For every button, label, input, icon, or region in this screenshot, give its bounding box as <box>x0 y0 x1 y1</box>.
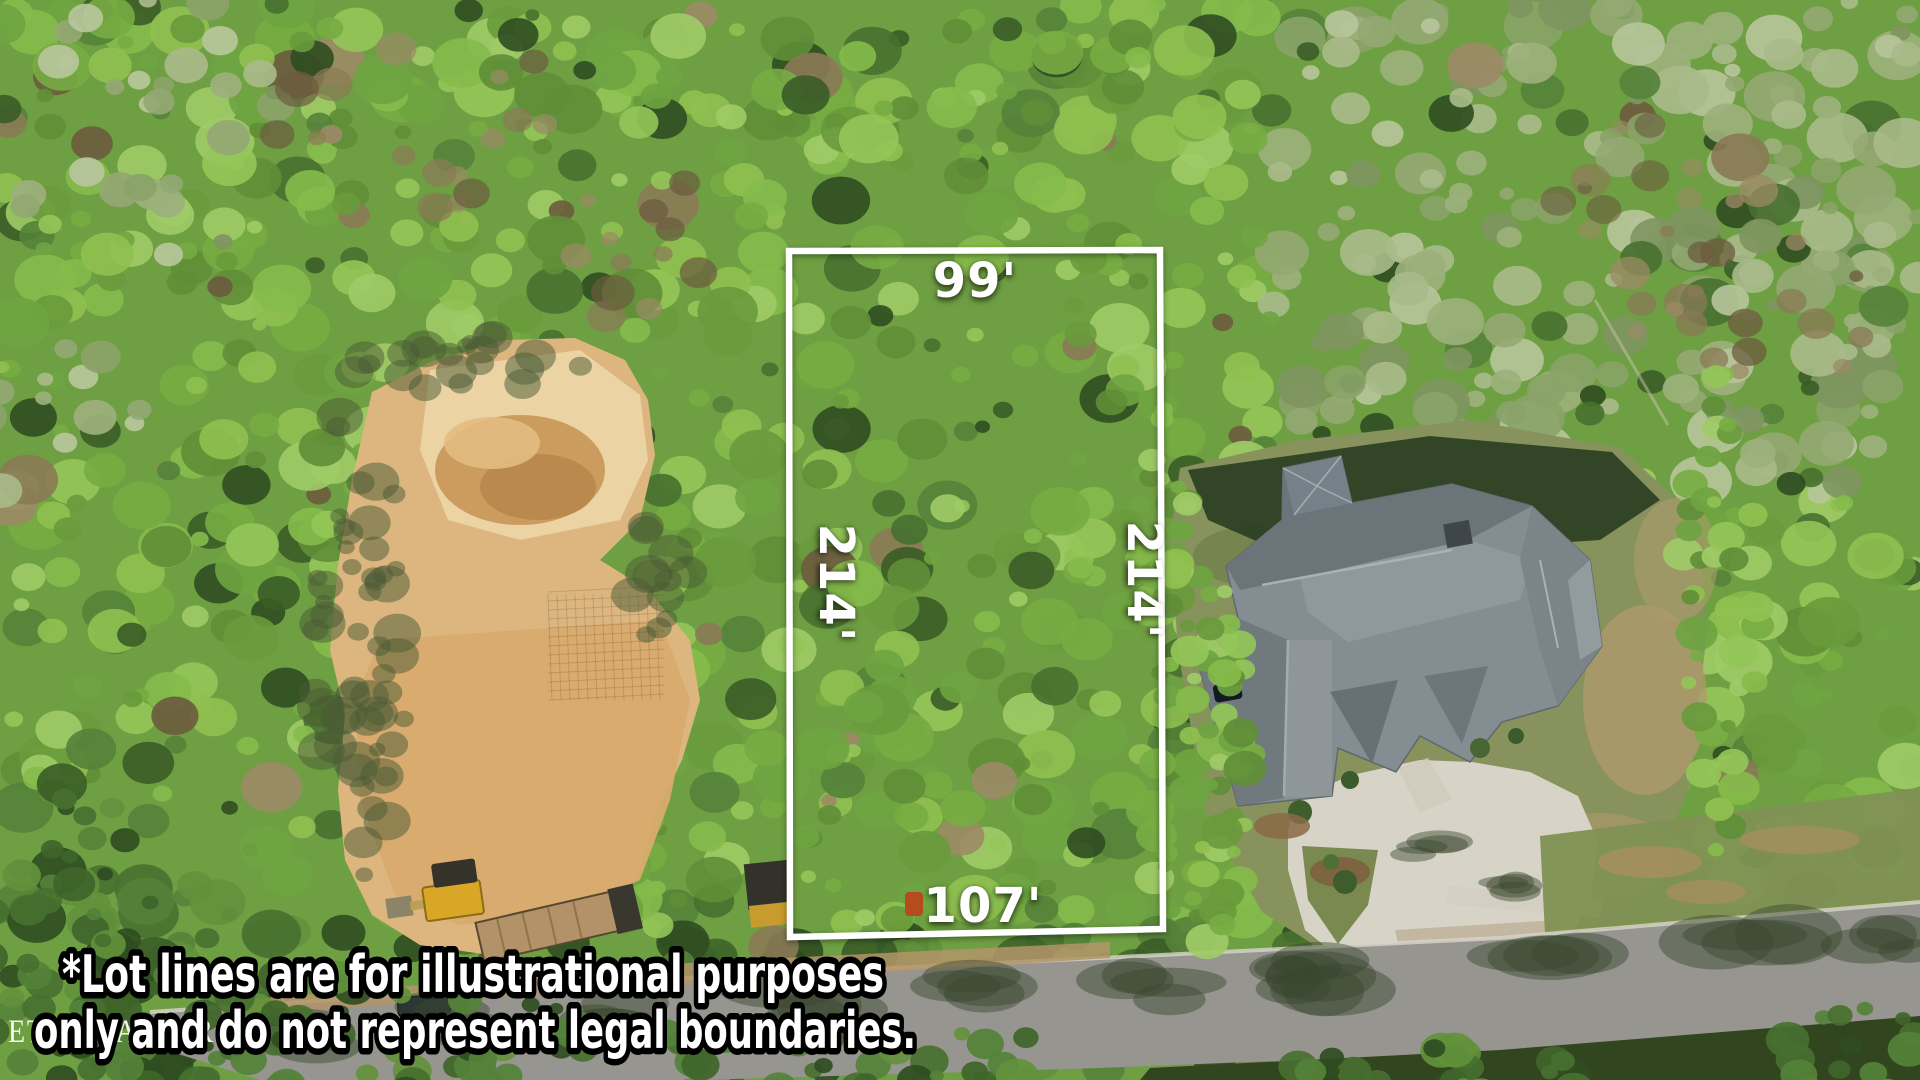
foliage-blob <box>996 82 1017 100</box>
foliage-blob <box>1702 365 1730 388</box>
foliage-blob <box>713 139 746 166</box>
foliage-blob <box>190 879 246 925</box>
foliage-blob <box>258 576 300 611</box>
foliage-blob <box>1218 252 1234 265</box>
foliage-blob <box>1575 402 1604 426</box>
foliage-blob <box>1089 691 1121 717</box>
foliage-blob <box>1650 66 1709 115</box>
foliage-blob <box>38 619 68 644</box>
foliage-blob <box>1556 109 1589 136</box>
foliage-blob <box>1540 186 1576 215</box>
foliage-blob <box>972 762 1018 799</box>
foliage-blob <box>1188 861 1220 887</box>
foliage-blob <box>191 532 209 546</box>
foliage-blob <box>924 338 941 352</box>
bulldozer-blade <box>385 895 414 918</box>
foliage-blob <box>792 825 820 848</box>
foliage-blob <box>802 460 837 489</box>
cast-shadow <box>1256 973 1331 1004</box>
foliage-blob <box>471 253 513 287</box>
foliage-blob <box>974 611 1000 632</box>
foliage-blob <box>44 557 80 587</box>
foliage-blob <box>1331 92 1370 124</box>
foliage-blob <box>52 789 77 810</box>
foliage-blob <box>1769 1030 1790 1047</box>
foliage-blob <box>735 479 780 516</box>
foliage-blob <box>1690 651 1704 663</box>
foliage-blob <box>729 23 745 36</box>
foliage-blob <box>1725 76 1745 92</box>
foliage-blob <box>1020 99 1052 126</box>
foliage-blob <box>1093 802 1110 816</box>
foliage-blob <box>153 786 173 802</box>
foliage-blob <box>1811 49 1858 88</box>
foliage-blob <box>1012 345 1039 367</box>
foliage-blob <box>1155 898 1181 919</box>
foliage-blob <box>1322 37 1360 68</box>
foliage-blob <box>1021 598 1078 645</box>
foliage-blob <box>1363 311 1402 343</box>
foliage-blob <box>954 422 978 442</box>
foliage-blob <box>668 892 688 908</box>
foliage-blob <box>81 341 121 374</box>
foliage-blob <box>1781 521 1836 566</box>
foliage-blob <box>1203 779 1218 791</box>
foliage-blob <box>1106 735 1123 749</box>
foliage-blob <box>3 860 41 891</box>
foliage-blob <box>36 242 52 255</box>
foliage-blob <box>1712 44 1737 64</box>
foliage-blob <box>243 60 277 87</box>
foliage-blob <box>695 623 723 646</box>
foliage-blob <box>1896 6 1918 24</box>
foliage-blob <box>1798 597 1860 648</box>
foliage-blob <box>53 867 95 902</box>
foliage-blob <box>1740 439 1776 468</box>
foliage-blob <box>1803 6 1833 31</box>
foliage-blob <box>202 26 238 55</box>
foliage-blob <box>1764 38 1804 70</box>
foliage-blob <box>851 225 905 269</box>
foliage-blob <box>1717 749 1749 775</box>
foliage-blob <box>1861 405 1878 419</box>
foliage-blob <box>721 616 765 652</box>
foliage-blob <box>365 565 410 602</box>
foliage-blob <box>992 142 1008 155</box>
shrub <box>1508 728 1524 744</box>
foliage-blob <box>481 128 506 148</box>
foliage-blob <box>88 48 131 84</box>
foliage-blob <box>53 433 78 453</box>
foliage-blob <box>154 243 183 267</box>
foliage-blob <box>1196 617 1225 640</box>
foliage-blob <box>1711 133 1769 181</box>
foliage-blob <box>38 215 61 234</box>
foliage-blob <box>1156 288 1205 328</box>
foliage-blob <box>373 681 402 705</box>
foliage-blob <box>1320 1048 1344 1068</box>
foliage-blob <box>1184 891 1202 906</box>
foliage-blob <box>1277 365 1329 408</box>
foliage-blob <box>1195 841 1210 854</box>
foliage-blob <box>1366 362 1407 396</box>
foliage-blob <box>35 114 66 140</box>
foliage-blob <box>1319 313 1365 350</box>
foliage-blob <box>629 516 663 544</box>
foliage-blob <box>680 257 718 288</box>
foliage-blob <box>1187 673 1201 685</box>
foliage-blob <box>1229 123 1268 155</box>
foliage-blob <box>944 158 989 195</box>
foliage-blob <box>782 75 830 114</box>
lot-dimension-right: 214' <box>1116 521 1172 640</box>
foliage-blob <box>167 270 197 295</box>
foliage-blob <box>553 41 577 60</box>
foliage-blob <box>303 619 329 640</box>
foliage-blob <box>801 870 816 882</box>
foliage-blob <box>334 520 364 544</box>
foliage-blob <box>359 537 389 562</box>
foliage-blob <box>967 1029 1004 1060</box>
foliage-blob <box>1346 160 1380 188</box>
foliage-blob <box>1635 113 1666 138</box>
foliage-blob <box>410 336 437 358</box>
foliage-blob <box>1586 195 1621 224</box>
foliage-blob <box>515 339 556 373</box>
cast-shadow <box>1489 882 1540 902</box>
foliage-blob <box>1676 188 1702 209</box>
foliage-blob <box>894 802 928 830</box>
foliage-blob <box>1340 229 1397 276</box>
foliage-blob <box>1732 338 1767 366</box>
foliage-blob <box>1484 313 1526 347</box>
foliage-blob <box>73 674 102 698</box>
foliage-blob <box>1828 1060 1850 1078</box>
foliage-blob <box>112 482 171 530</box>
foliage-blob <box>1016 730 1075 778</box>
foliage-blob <box>839 114 899 163</box>
foliage-blob <box>890 96 919 120</box>
foliage-blob <box>1619 66 1660 100</box>
foliage-blob <box>37 89 54 103</box>
foliage-blob <box>1031 487 1090 536</box>
foliage-blob <box>10 895 48 926</box>
foliage-blob <box>1474 373 1493 389</box>
foliage-blob <box>1222 630 1256 658</box>
foliage-blob <box>342 559 361 575</box>
foliage-blob <box>761 362 778 376</box>
foliage-blob <box>951 367 970 383</box>
foliage-blob <box>519 50 548 74</box>
foliage-blob <box>1862 370 1903 403</box>
foliage-blob <box>1721 720 1736 732</box>
foliage-blob <box>1792 683 1816 702</box>
foliage-blob <box>1168 775 1210 810</box>
foliage-blob <box>1285 408 1318 435</box>
foliage-blob <box>128 71 151 90</box>
foliage-blob <box>1067 214 1090 233</box>
shrub <box>1341 771 1359 789</box>
foliage-blob <box>1563 281 1595 307</box>
foliage-blob <box>1738 503 1767 527</box>
foliage-blob <box>216 252 238 270</box>
foliage-blob <box>110 828 139 852</box>
foliage-blob <box>68 4 103 33</box>
foliage-blob <box>1878 706 1917 738</box>
foliage-blob <box>151 697 198 736</box>
foliage-blob <box>697 287 758 337</box>
foliage-blob <box>1686 759 1722 788</box>
foliage-blob <box>240 826 294 870</box>
foliage-blob <box>1876 628 1890 640</box>
foliage-blob <box>289 32 314 53</box>
foliage-blob <box>1380 50 1424 86</box>
foliage-blob <box>1813 96 1841 119</box>
foliage-blob <box>1627 292 1657 316</box>
foliage-blob <box>73 806 96 825</box>
foliage-blob <box>344 827 383 859</box>
foliage-blob <box>1739 175 1778 207</box>
foliage-blob <box>1681 590 1699 605</box>
foliage-blob <box>1156 844 1178 862</box>
foliage-blob <box>422 159 456 187</box>
foliage-blob <box>1030 31 1084 75</box>
foliage-blob <box>744 730 789 767</box>
foliage-blob <box>498 18 539 52</box>
foliage-blob <box>305 257 325 273</box>
foliage-blob <box>897 419 947 460</box>
foliage-blob <box>1612 121 1629 135</box>
foliage-blob <box>1612 22 1665 65</box>
foliage-blob <box>1517 114 1541 134</box>
island-tree <box>1333 870 1357 894</box>
foliage-blob <box>689 821 726 852</box>
foliage-blob <box>223 615 279 661</box>
foliage-blob <box>1224 352 1260 382</box>
foliage-blob <box>651 367 668 381</box>
foliage-blob <box>78 827 107 851</box>
foliage-blob <box>394 711 414 727</box>
foliage-blob <box>78 1058 106 1080</box>
foliage-blob <box>1742 671 1768 692</box>
foliage-blob <box>1209 914 1235 935</box>
foliage-blob <box>1139 749 1176 779</box>
foliage-blob <box>872 490 905 517</box>
foliage-blob <box>1102 70 1145 105</box>
foliage-blob <box>247 221 262 234</box>
foliage-blob <box>1708 522 1745 553</box>
foliage-blob <box>4 712 23 727</box>
foliage-blob <box>1036 7 1067 33</box>
foliage-blob <box>1496 401 1526 425</box>
foliage-blob <box>35 391 52 405</box>
foliage-blob <box>831 306 872 339</box>
foliage-blob <box>654 246 673 262</box>
foliage-blob <box>1771 100 1806 129</box>
foliage-blob <box>1801 209 1854 252</box>
cast-shadow <box>1503 935 1599 976</box>
foliage-blob <box>1847 533 1903 579</box>
foliage-blob <box>725 678 776 720</box>
foliage-blob <box>812 177 870 225</box>
foliage-blob <box>1130 496 1151 513</box>
foliage-blob <box>1198 722 1219 739</box>
foliage-blob <box>1681 676 1696 689</box>
skid-steer <box>744 860 793 928</box>
foliage-blob <box>317 17 344 39</box>
foliage-blob <box>927 87 977 128</box>
foliage-blob <box>1708 843 1724 856</box>
foliage-blob <box>877 326 916 358</box>
foliage-blob <box>1014 163 1066 206</box>
foliage-blob <box>797 727 850 770</box>
foliage-blob <box>1096 389 1128 415</box>
foliage-blob <box>1324 365 1366 399</box>
foliage-blob <box>1445 194 1468 213</box>
foliage-blob <box>475 322 507 348</box>
garage-wing-east-face <box>1284 640 1332 798</box>
foliage-blob <box>993 402 1013 419</box>
lot-dimension-bottom: 107' <box>924 878 1043 934</box>
foliage-blob <box>1872 266 1892 282</box>
foliage-blob <box>669 170 700 195</box>
foliage-blob <box>1207 659 1241 687</box>
foliage-blob <box>966 648 1005 680</box>
foliage-blob <box>1447 42 1503 88</box>
foliage-blob <box>182 605 209 627</box>
foliage-blob <box>332 192 360 215</box>
foliage-blob <box>930 494 964 522</box>
foliage-blob <box>1318 223 1340 241</box>
foliage-blob <box>1695 446 1721 467</box>
foliage-blob <box>975 421 990 433</box>
foliage-blob <box>1227 265 1256 289</box>
foliage-blob <box>1596 361 1628 387</box>
foliage-blob <box>1054 105 1114 154</box>
foliage-blob <box>1660 225 1674 237</box>
foliage-blob <box>1799 421 1854 466</box>
foliage-blob <box>796 341 854 389</box>
foliage-blob <box>1338 206 1356 220</box>
foliage-blob <box>1058 895 1095 925</box>
foliage-blob <box>14 598 30 611</box>
foliage-blob <box>383 485 406 504</box>
foliage-blob <box>1728 309 1763 338</box>
foliage-blob <box>1681 158 1703 176</box>
foliage-blob <box>1834 495 1853 510</box>
foliage-blob <box>569 357 592 376</box>
foliage-blob <box>1801 380 1820 395</box>
foliage-blob <box>105 79 124 95</box>
foliage-blob <box>619 106 658 138</box>
foliage-blob <box>358 355 381 374</box>
foliage-blob <box>0 988 24 1008</box>
foliage-blob <box>1798 308 1835 339</box>
foliage-blob <box>611 173 627 186</box>
foliage-blob <box>1610 257 1650 290</box>
cast-shadow <box>1133 984 1206 1016</box>
foliage-blob <box>367 636 391 656</box>
foliage-blob <box>748 536 805 583</box>
foliage-blob <box>839 41 876 71</box>
foliage-blob <box>207 120 250 155</box>
foliage-blob <box>249 413 279 438</box>
foliage-blob <box>1357 16 1396 48</box>
foliage-blob <box>1225 80 1261 109</box>
lot-dimension-top: 99' <box>933 253 1018 309</box>
foliage-blob <box>954 1027 970 1040</box>
foliage-blob <box>11 194 40 218</box>
foliage-blob <box>1014 784 1052 815</box>
foliage-blob <box>1895 1012 1911 1025</box>
cast-shadow <box>937 967 1038 1007</box>
foliage-blob <box>611 578 654 613</box>
foliage-blob <box>1703 12 1744 45</box>
foliage-blob <box>993 17 1022 41</box>
foliage-blob <box>491 70 509 85</box>
foliage-blob <box>1172 263 1204 289</box>
foliage-blob <box>1325 10 1359 38</box>
foliage-blob <box>1065 321 1097 347</box>
foliage-blob <box>392 146 416 165</box>
foliage-blob <box>409 374 442 401</box>
foliage-blob <box>1200 586 1220 602</box>
foliage-blob <box>308 130 326 145</box>
foliage-blob <box>1777 472 1806 496</box>
dirt-patch <box>1598 846 1702 878</box>
foliage-blob <box>118 36 134 49</box>
foliage-blob <box>1456 151 1486 176</box>
foliage-blob <box>1822 202 1837 215</box>
foliage-blob <box>395 125 411 138</box>
foliage-blob <box>221 801 238 815</box>
island-shrub <box>1323 854 1339 870</box>
foliage-blob <box>275 71 319 107</box>
foliage-blob <box>1013 1027 1038 1048</box>
foliage-blob <box>1859 435 1887 458</box>
foliage-blob <box>1676 520 1703 542</box>
foliage-blob <box>241 762 302 812</box>
foliage-blob <box>71 211 91 227</box>
foliage-blob <box>1857 1002 1874 1016</box>
foliage-blob <box>160 174 183 193</box>
foliage-blob <box>1031 667 1078 706</box>
foliage-blob <box>1676 616 1718 650</box>
foliage-blob <box>1532 311 1568 341</box>
foliage-blob <box>157 461 180 480</box>
foliage-blob <box>348 274 395 313</box>
foliage-blob <box>1129 273 1149 289</box>
foliage-blob <box>1320 396 1355 425</box>
foliage-blob <box>813 405 871 453</box>
foliage-blob <box>139 53 158 69</box>
foliage-blob <box>646 617 672 638</box>
foliage-blob <box>97 868 113 881</box>
foliage-blob <box>1859 286 1909 327</box>
foliage-blob <box>1719 635 1759 668</box>
foliage-blob <box>1223 718 1259 747</box>
foliage-blob <box>1067 557 1093 578</box>
foliage-blob <box>376 32 417 65</box>
foliage-blob <box>1180 620 1195 633</box>
foliage-blob <box>562 15 590 38</box>
chimney <box>1443 520 1473 548</box>
mulch-bed <box>1254 813 1310 839</box>
foliage-blob <box>66 728 116 769</box>
foliage-blob <box>1297 42 1320 61</box>
caption-overlay: ETN REALTORS *Lot lines are for illustra… <box>8 945 916 1061</box>
lot-dimension-left: 214' <box>808 524 864 643</box>
